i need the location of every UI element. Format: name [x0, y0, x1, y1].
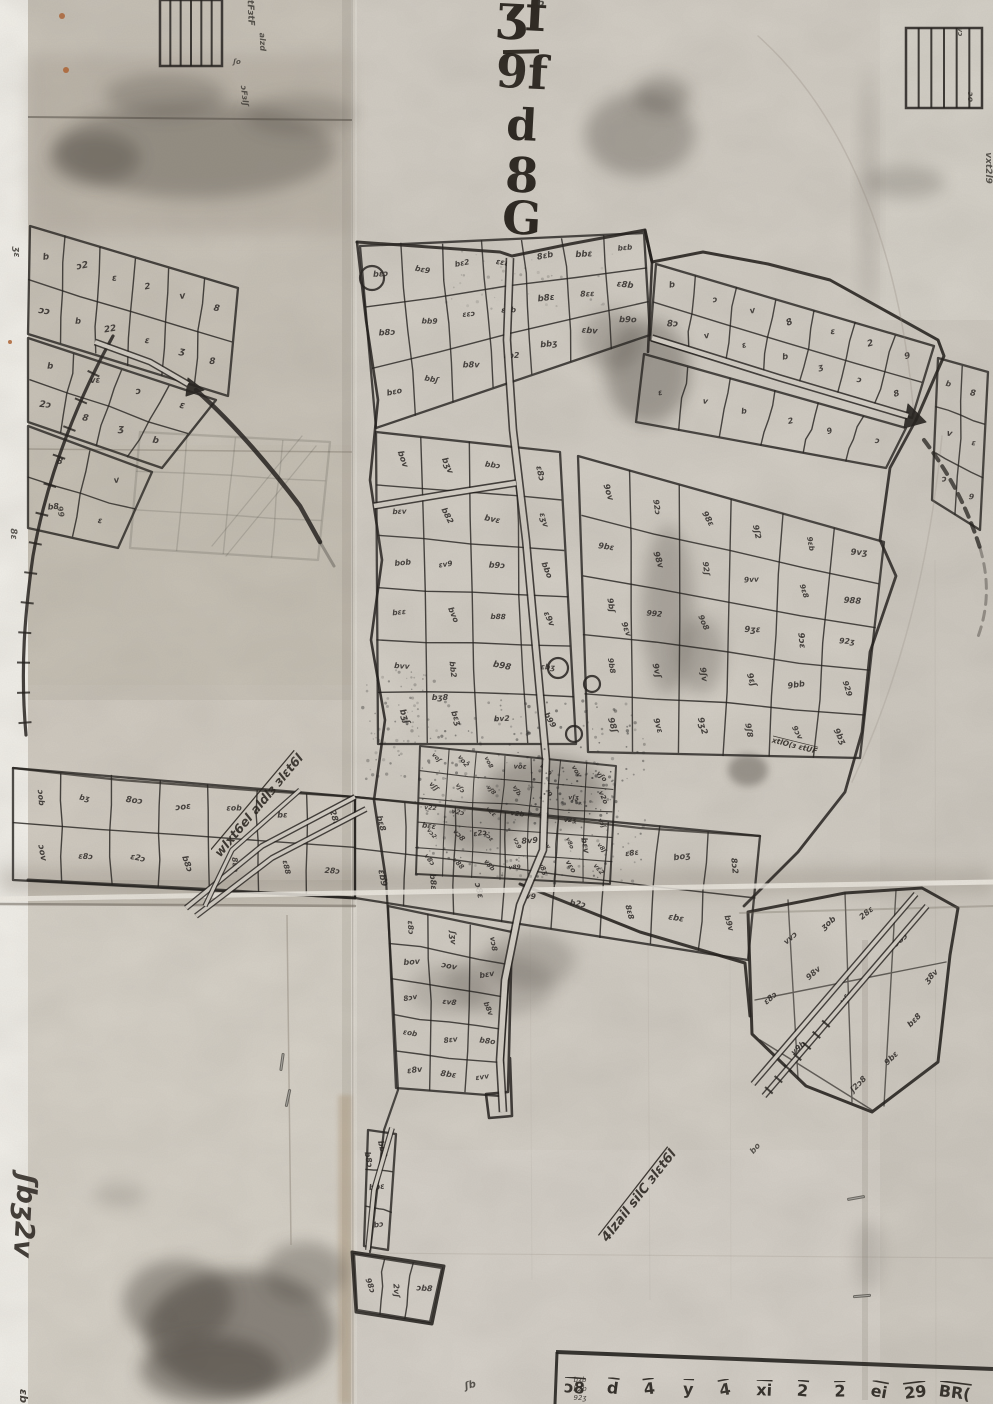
scanned-map-page: bɔ2ɛ2v8ɔɔb22ɛʒ8bvɛɔɛ2ɔ8ʒb8vb8ɛɔobbʒ8oɔɔo…: [0, 0, 993, 1404]
cadastral-map-scan: bɔ2ɛ2v8ɔɔb22ɛʒ8bvɛɔɛ2ɔ8ʒb8vb8ɛɔobbʒ8oɔɔo…: [0, 0, 993, 1404]
paper-texture: [0, 0, 993, 1404]
